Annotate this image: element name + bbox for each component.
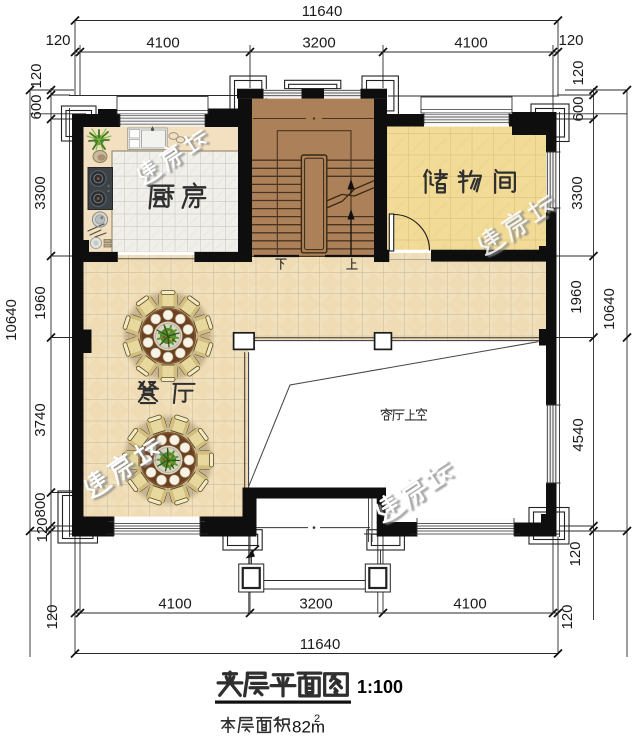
svg-text:120: 120 — [44, 604, 61, 629]
svg-text:3300: 3300 — [569, 176, 586, 209]
svg-text:120: 120 — [45, 32, 70, 49]
svg-text:4100: 4100 — [454, 35, 487, 52]
svg-text:2: 2 — [314, 713, 320, 725]
svg-text:800: 800 — [32, 492, 49, 517]
svg-text:1960: 1960 — [568, 280, 585, 313]
svg-text:120: 120 — [559, 604, 576, 629]
svg-text:11640: 11640 — [302, 3, 343, 20]
svg-text:3200: 3200 — [299, 596, 332, 613]
svg-text:120: 120 — [570, 60, 587, 85]
svg-text:600: 600 — [28, 94, 45, 119]
svg-text:1960: 1960 — [32, 286, 49, 319]
svg-text:4540: 4540 — [570, 418, 587, 451]
svg-text:120: 120 — [558, 32, 583, 49]
svg-text:3740: 3740 — [32, 403, 49, 436]
svg-text:4100: 4100 — [453, 596, 486, 613]
svg-text:3200: 3200 — [302, 35, 335, 52]
svg-text:10640: 10640 — [601, 288, 618, 330]
svg-text:120: 120 — [567, 541, 584, 566]
svg-text:11640: 11640 — [300, 636, 341, 653]
svg-text:1:100: 1:100 — [357, 677, 403, 697]
svg-text:3300: 3300 — [32, 176, 49, 209]
svg-text:4100: 4100 — [158, 596, 191, 613]
svg-text:120: 120 — [28, 63, 45, 88]
svg-text:10640: 10640 — [3, 299, 20, 341]
svg-text:4100: 4100 — [146, 35, 179, 52]
svg-text:120: 120 — [34, 517, 51, 542]
svg-text:600: 600 — [570, 96, 587, 121]
